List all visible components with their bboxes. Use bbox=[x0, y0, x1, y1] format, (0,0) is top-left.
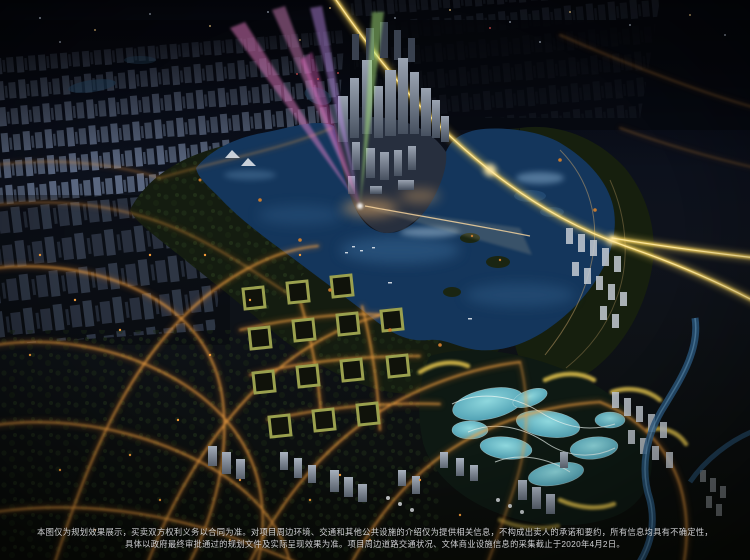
planning-render-image: 本图仅为规划效果展示，买卖双方权利义务以合同为准。对项目周边环境、交通和其他公共… bbox=[0, 0, 750, 560]
vignette-overlay bbox=[0, 0, 750, 560]
night-aerial-scene bbox=[0, 0, 750, 560]
